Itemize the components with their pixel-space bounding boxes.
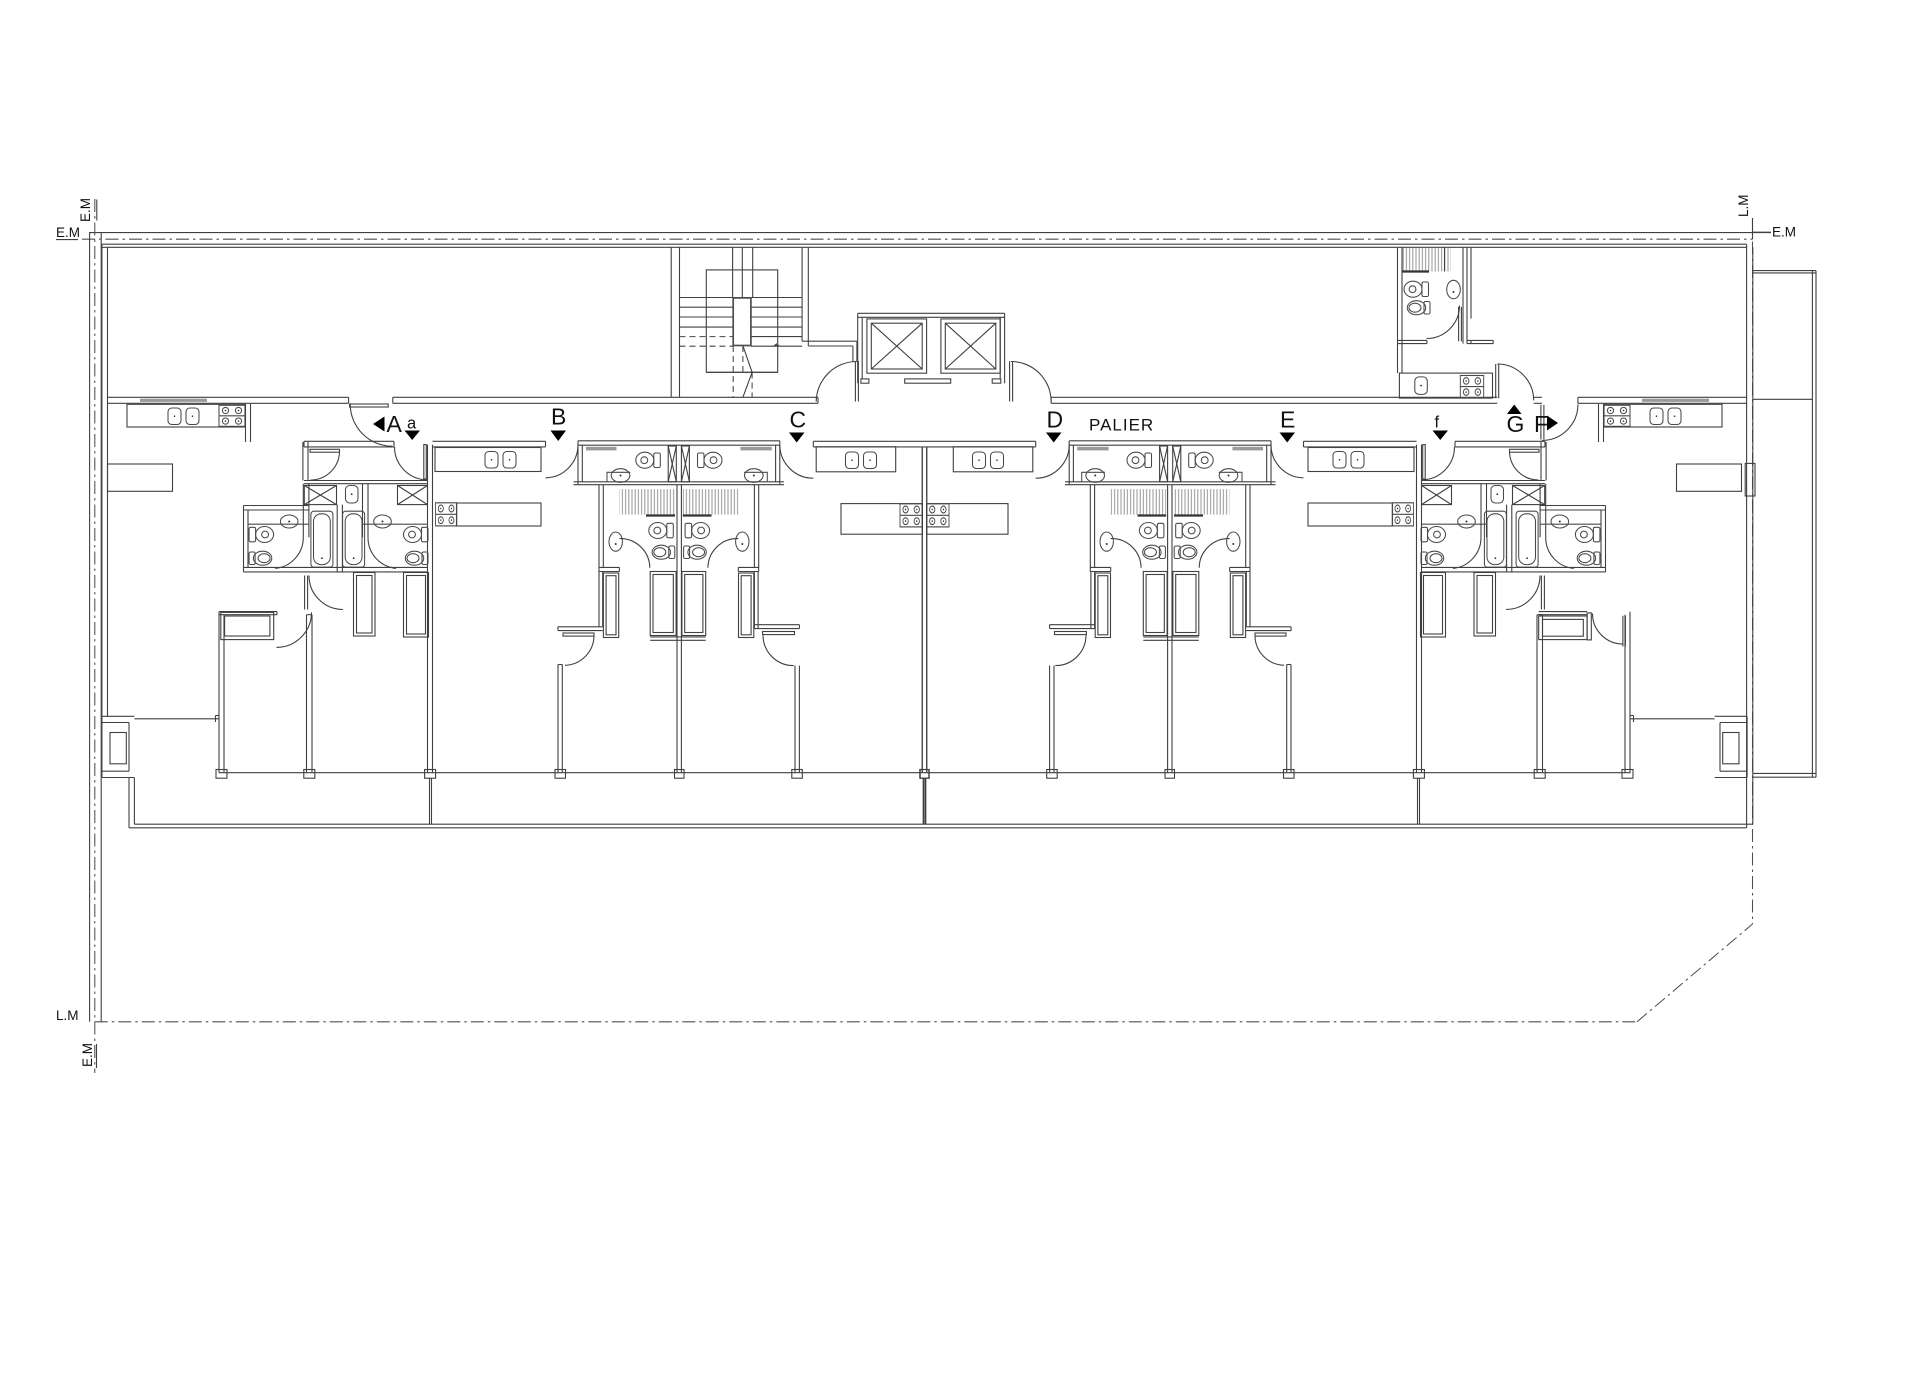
svg-text:F: F [1534,411,1548,437]
svg-text:E.M: E.M [1772,225,1796,240]
svg-text:L.M: L.M [1736,194,1751,217]
svg-text:E.M: E.M [80,1043,95,1067]
svg-text:L.M: L.M [56,1008,79,1023]
svg-text:G: G [1507,411,1525,437]
svg-text:A: A [387,411,403,437]
svg-text:C: C [790,407,807,433]
svg-text:E: E [1280,407,1295,433]
svg-text:a: a [407,415,417,433]
svg-text:f: f [1435,414,1440,432]
svg-text:D: D [1047,407,1064,433]
svg-text:E.M: E.M [78,198,93,222]
svg-text:E.M: E.M [56,225,80,240]
svg-text:B: B [551,404,566,430]
svg-text:PALIER: PALIER [1089,416,1154,435]
